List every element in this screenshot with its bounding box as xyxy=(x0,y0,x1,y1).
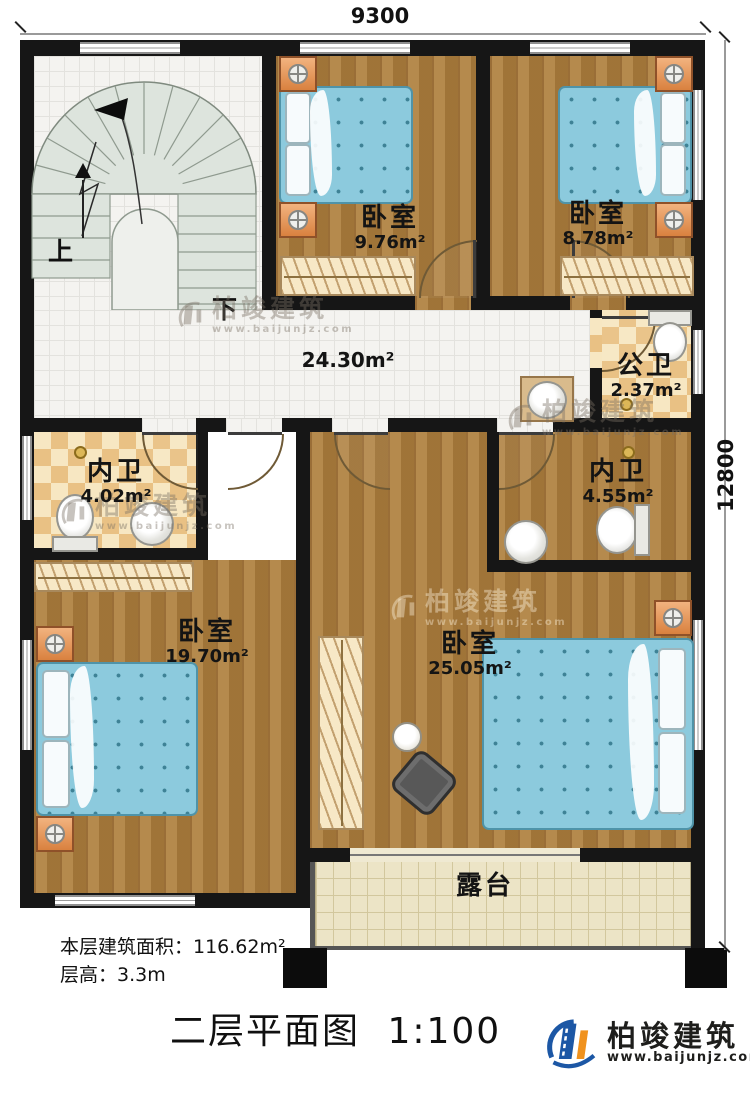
wardrobe xyxy=(318,636,364,830)
window xyxy=(693,90,703,200)
lamp-icon xyxy=(664,64,684,84)
room-area: 8.78m² xyxy=(528,229,668,249)
lamp-icon xyxy=(663,608,683,628)
room-name: 卧室 xyxy=(528,200,668,229)
up-arrow-head xyxy=(75,163,91,178)
lamp-icon xyxy=(45,634,65,654)
column-block xyxy=(283,948,327,988)
floor-area-note: 本层建筑面积：116.62m² xyxy=(60,932,286,959)
room-area: 4.02m² xyxy=(58,487,174,507)
plan-scale: 1:100 xyxy=(387,1011,501,1052)
room-label-ensuite-left: 内卫 4.02m² xyxy=(58,458,174,506)
dimension-tick xyxy=(14,21,26,33)
pillow xyxy=(658,648,686,730)
door-opening xyxy=(570,296,626,310)
dimension-right: 12800 xyxy=(714,452,738,512)
pillow xyxy=(42,670,70,738)
room-label-ensuite-right: 内卫 4.55m² xyxy=(558,458,678,506)
terrace-parapet xyxy=(315,946,691,950)
room-name: 卧室 xyxy=(320,204,460,233)
brand-name: 柏竣建筑 xyxy=(607,1021,750,1051)
door-leaf xyxy=(499,432,553,435)
door-arc xyxy=(228,434,284,490)
wardrobe xyxy=(560,256,694,296)
room-name: 公卫 xyxy=(596,352,696,381)
nightstand xyxy=(279,202,317,238)
nightstand xyxy=(36,626,74,662)
pillow xyxy=(658,732,686,814)
brand-logo-icon xyxy=(545,1012,599,1074)
sink xyxy=(130,502,174,546)
nightstand xyxy=(36,816,74,852)
wall xyxy=(476,40,490,296)
sink xyxy=(527,381,567,419)
floor-plan-page: 上 下 柏竣建筑www.baijunjz.com xyxy=(0,0,750,1100)
window xyxy=(55,895,195,906)
room-label-bedroom-bottom-left: 卧室 19.70m² xyxy=(140,618,274,666)
door-opening xyxy=(142,418,196,432)
door-opening xyxy=(415,296,471,310)
pillow xyxy=(285,92,311,144)
door-opening xyxy=(332,418,388,432)
wall xyxy=(580,848,691,862)
nightstand xyxy=(654,600,692,636)
plan-title-text: 二层平面图 xyxy=(170,1011,360,1052)
up-arrow-line xyxy=(82,180,84,238)
dimension-top: 9300 xyxy=(335,4,425,28)
wall xyxy=(262,40,276,310)
door-leaf xyxy=(142,432,196,435)
room-label-terrace: 露台 xyxy=(420,872,550,901)
wall xyxy=(20,548,208,560)
window xyxy=(22,640,32,750)
window xyxy=(22,436,32,520)
sliding-door-track xyxy=(350,854,580,856)
floor-height-note: 层高：3.3m xyxy=(60,960,166,987)
door-leaf xyxy=(228,432,282,435)
sink xyxy=(504,520,548,564)
terrace-parapet xyxy=(310,862,315,948)
toilet-tank xyxy=(52,536,98,552)
toilet-bowl xyxy=(596,506,638,554)
lamp-icon xyxy=(288,64,308,84)
wall xyxy=(310,848,350,862)
room-label-public-bath: 公卫 2.37m² xyxy=(596,352,696,400)
door-leaf xyxy=(334,432,388,435)
room-area: 9.76m² xyxy=(320,233,460,253)
room-area: 4.55m² xyxy=(558,487,678,507)
room-area: 25.05m² xyxy=(398,659,542,679)
plan-title: 二层平面图 1:100 xyxy=(170,1002,501,1054)
nightstand xyxy=(279,56,317,92)
window xyxy=(530,42,630,54)
wall xyxy=(487,432,499,572)
window xyxy=(693,620,703,750)
room-area: 2.37m² xyxy=(596,381,696,401)
staircase xyxy=(24,46,262,310)
hallway-area-label: 24.30m² xyxy=(268,348,428,372)
side-table xyxy=(392,722,422,752)
room-name: 露台 xyxy=(420,872,550,901)
door-leaf xyxy=(473,240,476,298)
stair-up-label: 上 xyxy=(48,232,73,268)
brand-url: www.baijunjz.com xyxy=(607,1051,750,1065)
lamp-icon xyxy=(288,210,308,230)
window xyxy=(300,42,410,54)
door-opening xyxy=(226,418,282,432)
room-name: 内卫 xyxy=(558,458,678,487)
column-block xyxy=(685,948,727,988)
room-area: 19.70m² xyxy=(140,647,274,667)
pillow xyxy=(660,92,686,144)
room-name: 内卫 xyxy=(58,458,174,487)
room-label-bedroom-top-mid: 卧室 9.76m² xyxy=(320,204,460,252)
pillow xyxy=(42,740,70,808)
dimension-tick xyxy=(699,21,711,33)
brand-logo: 柏竣建筑 www.baijunjz.com xyxy=(545,1012,750,1074)
pillow xyxy=(285,144,311,196)
room-label-bedroom-bottom-right: 卧室 25.05m² xyxy=(398,630,542,678)
wall xyxy=(296,418,310,908)
toilet-tank xyxy=(634,504,650,556)
room-name: 卧室 xyxy=(398,630,542,659)
nightstand xyxy=(655,56,693,92)
stair-down-label: 下 xyxy=(212,290,237,326)
dimension-line-top xyxy=(20,33,706,35)
room-name: 卧室 xyxy=(140,618,274,647)
closet xyxy=(34,562,194,592)
pillow xyxy=(660,144,686,196)
lamp-icon xyxy=(45,824,65,844)
door-leaf xyxy=(602,316,654,319)
room-label-bedroom-top-right: 卧室 8.78m² xyxy=(528,200,668,248)
wall xyxy=(262,296,705,310)
wardrobe xyxy=(280,256,416,296)
